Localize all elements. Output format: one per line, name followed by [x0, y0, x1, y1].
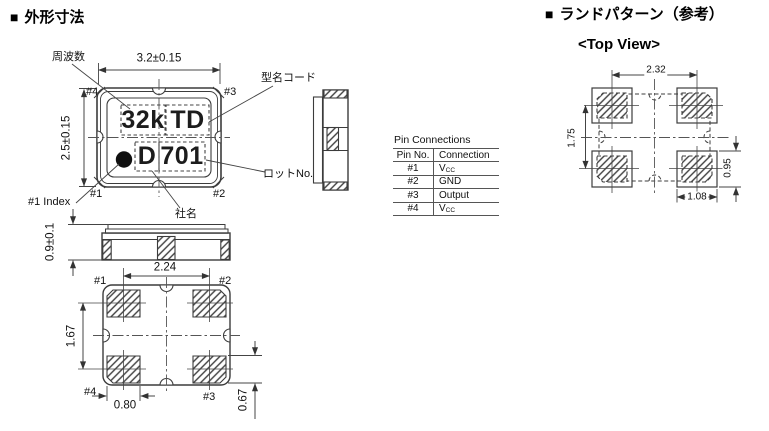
- pin-table-row: #3 Output: [393, 189, 499, 202]
- marking-model-code: TD: [166, 105, 209, 135]
- connection-cell: GND: [433, 176, 499, 188]
- topview-pin1-label: #1: [90, 188, 102, 200]
- lot-no-label: ロットNo.: [263, 168, 313, 180]
- top-view-label: <Top View>: [578, 36, 660, 53]
- frequency-label: 周波数: [52, 51, 85, 63]
- bottomview-pin2-label: #2: [219, 275, 231, 287]
- bottomview-pin3-label: #3: [203, 391, 215, 403]
- land-pattern-section-title: ランドパターン（参考）: [559, 3, 723, 24]
- package-front-view: [68, 209, 230, 276]
- land-pattern: [579, 70, 741, 203]
- connection-value: V: [439, 203, 446, 214]
- dim-pad-width: 0.80: [114, 400, 136, 413]
- pin-no-cell: #4: [393, 203, 433, 215]
- company-label: 社名: [175, 208, 197, 220]
- bottomview-pin4-label: #4: [84, 386, 96, 398]
- connection-cell: VCC: [433, 203, 499, 215]
- land-dim-pad-height: 0.95: [723, 156, 734, 179]
- pin-no-cell: #1: [393, 162, 433, 174]
- pin-no-cell: #2: [393, 176, 433, 188]
- land-dim-pad-width: 1.08: [685, 192, 708, 203]
- square-bullet-icon: ■: [545, 6, 553, 22]
- pin-table-header-connection: Connection: [433, 149, 499, 161]
- land-dim-pitch-y: 1.75: [567, 128, 578, 147]
- pin-no-cell: #3: [393, 189, 433, 201]
- pin1-index-label: #1 Index: [28, 196, 70, 208]
- connection-value: V: [439, 163, 446, 174]
- pin-table-header-pin: Pin No.: [393, 149, 433, 161]
- dim-thickness: 0.9±0.1: [45, 223, 58, 261]
- land-dim-pitch-x: 2.32: [644, 65, 667, 76]
- package-bottom-view: [78, 268, 262, 419]
- dim-pad-span-y: 1.67: [66, 325, 79, 347]
- square-bullet-icon: ■: [10, 9, 18, 25]
- land-pattern-section-heading: ■ ランドパターン（参考）: [545, 3, 724, 24]
- connection-subscript: CC: [446, 207, 455, 214]
- marking-frequency: 32k: [121, 105, 165, 135]
- pin-table-row: #1 VCC: [393, 162, 499, 175]
- pin-table-row: #4 VCC: [393, 203, 499, 215]
- pin-table-header-row: Pin No. Connection: [393, 149, 499, 162]
- connection-cell: Output: [433, 189, 499, 201]
- dim-body-width: 3.2±0.15: [137, 53, 182, 66]
- package-side-view: [314, 90, 349, 190]
- connection-subscript: CC: [446, 167, 455, 174]
- dim-pad-height: 0.67: [238, 389, 251, 411]
- package-top-view: [88, 79, 230, 197]
- pin-table-title: Pin Connections: [393, 134, 499, 148]
- outline-section-heading: ■ 外形寸法: [10, 6, 84, 27]
- datasheet-page: ■ 外形寸法 ■ ランドパターン（参考） <Top View> 32k TD D…: [0, 0, 769, 431]
- outline-section-title: 外形寸法: [24, 6, 84, 27]
- pin-connections-table: Pin Connections Pin No. Connection #1 VC…: [393, 134, 499, 216]
- topview-pin3-label: #3: [224, 86, 236, 98]
- model-code-label: 型名コード: [261, 72, 316, 84]
- dim-body-height: 2.5±0.15: [61, 116, 74, 161]
- topview-pin4-label: #4: [86, 86, 98, 98]
- bottomview-pin1-label: #1: [94, 275, 106, 287]
- topview-pin2-label: #2: [213, 188, 225, 200]
- connection-value: Output: [439, 190, 469, 201]
- pin-table-grid: Pin No. Connection #1 VCC #2 GND #3 Outp…: [393, 148, 499, 216]
- pin-table-row: #2 GND: [393, 176, 499, 189]
- dim-pad-span-x: 2.24: [154, 262, 176, 275]
- marking-company: D: [135, 142, 159, 171]
- marking-lot: 701: [159, 142, 205, 171]
- connection-cell: VCC: [433, 162, 499, 174]
- connection-value: GND: [439, 176, 461, 187]
